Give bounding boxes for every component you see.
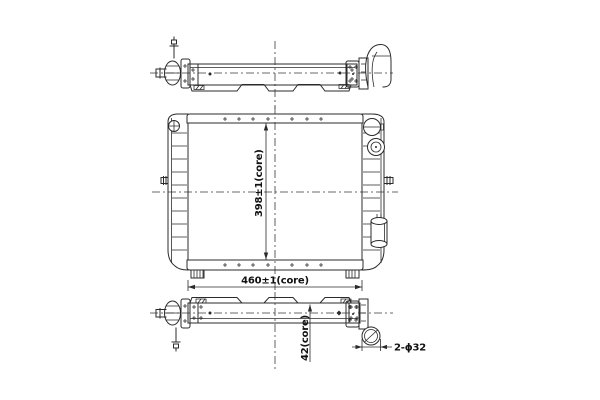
front-view: 398±1(core) 460±1(core)	[152, 106, 398, 292]
radiator-three-view-drawing: 398±1(core) 460±1(core)	[0, 0, 600, 400]
pipe-diameter-label: 2-ϕ32	[394, 343, 426, 354]
bottom-view: 42(core) 2-ϕ32	[150, 292, 426, 372]
top-view-right-fitting	[346, 45, 391, 89]
left-threaded-pin	[161, 177, 168, 185]
drain-cylinder	[371, 214, 387, 248]
top-view	[150, 37, 393, 109]
bottom-view-left-fitting	[156, 299, 190, 351]
mounting-foot-left	[191, 270, 204, 278]
top-tank-band	[188, 64, 357, 91]
technical-drawing-page: 398±1(core) 460±1(core)	[0, 0, 600, 400]
mounting-foot-right	[346, 270, 359, 278]
top-view-left-fitting	[156, 37, 190, 88]
filler-neck	[366, 45, 391, 87]
core-width-label: 460±1(core)	[241, 276, 309, 287]
bleed-pin	[170, 37, 178, 58]
right-threaded-pin	[384, 177, 393, 185]
core-height-label: 398±1(core)	[254, 149, 265, 217]
bottom-tank-stamped-flange	[190, 298, 351, 304]
core-depth-label: 42(core)	[300, 315, 311, 361]
bottom-tank-band	[188, 298, 360, 324]
dimension-core-height: 398±1(core)	[254, 124, 268, 260]
drain-pin	[172, 328, 180, 351]
